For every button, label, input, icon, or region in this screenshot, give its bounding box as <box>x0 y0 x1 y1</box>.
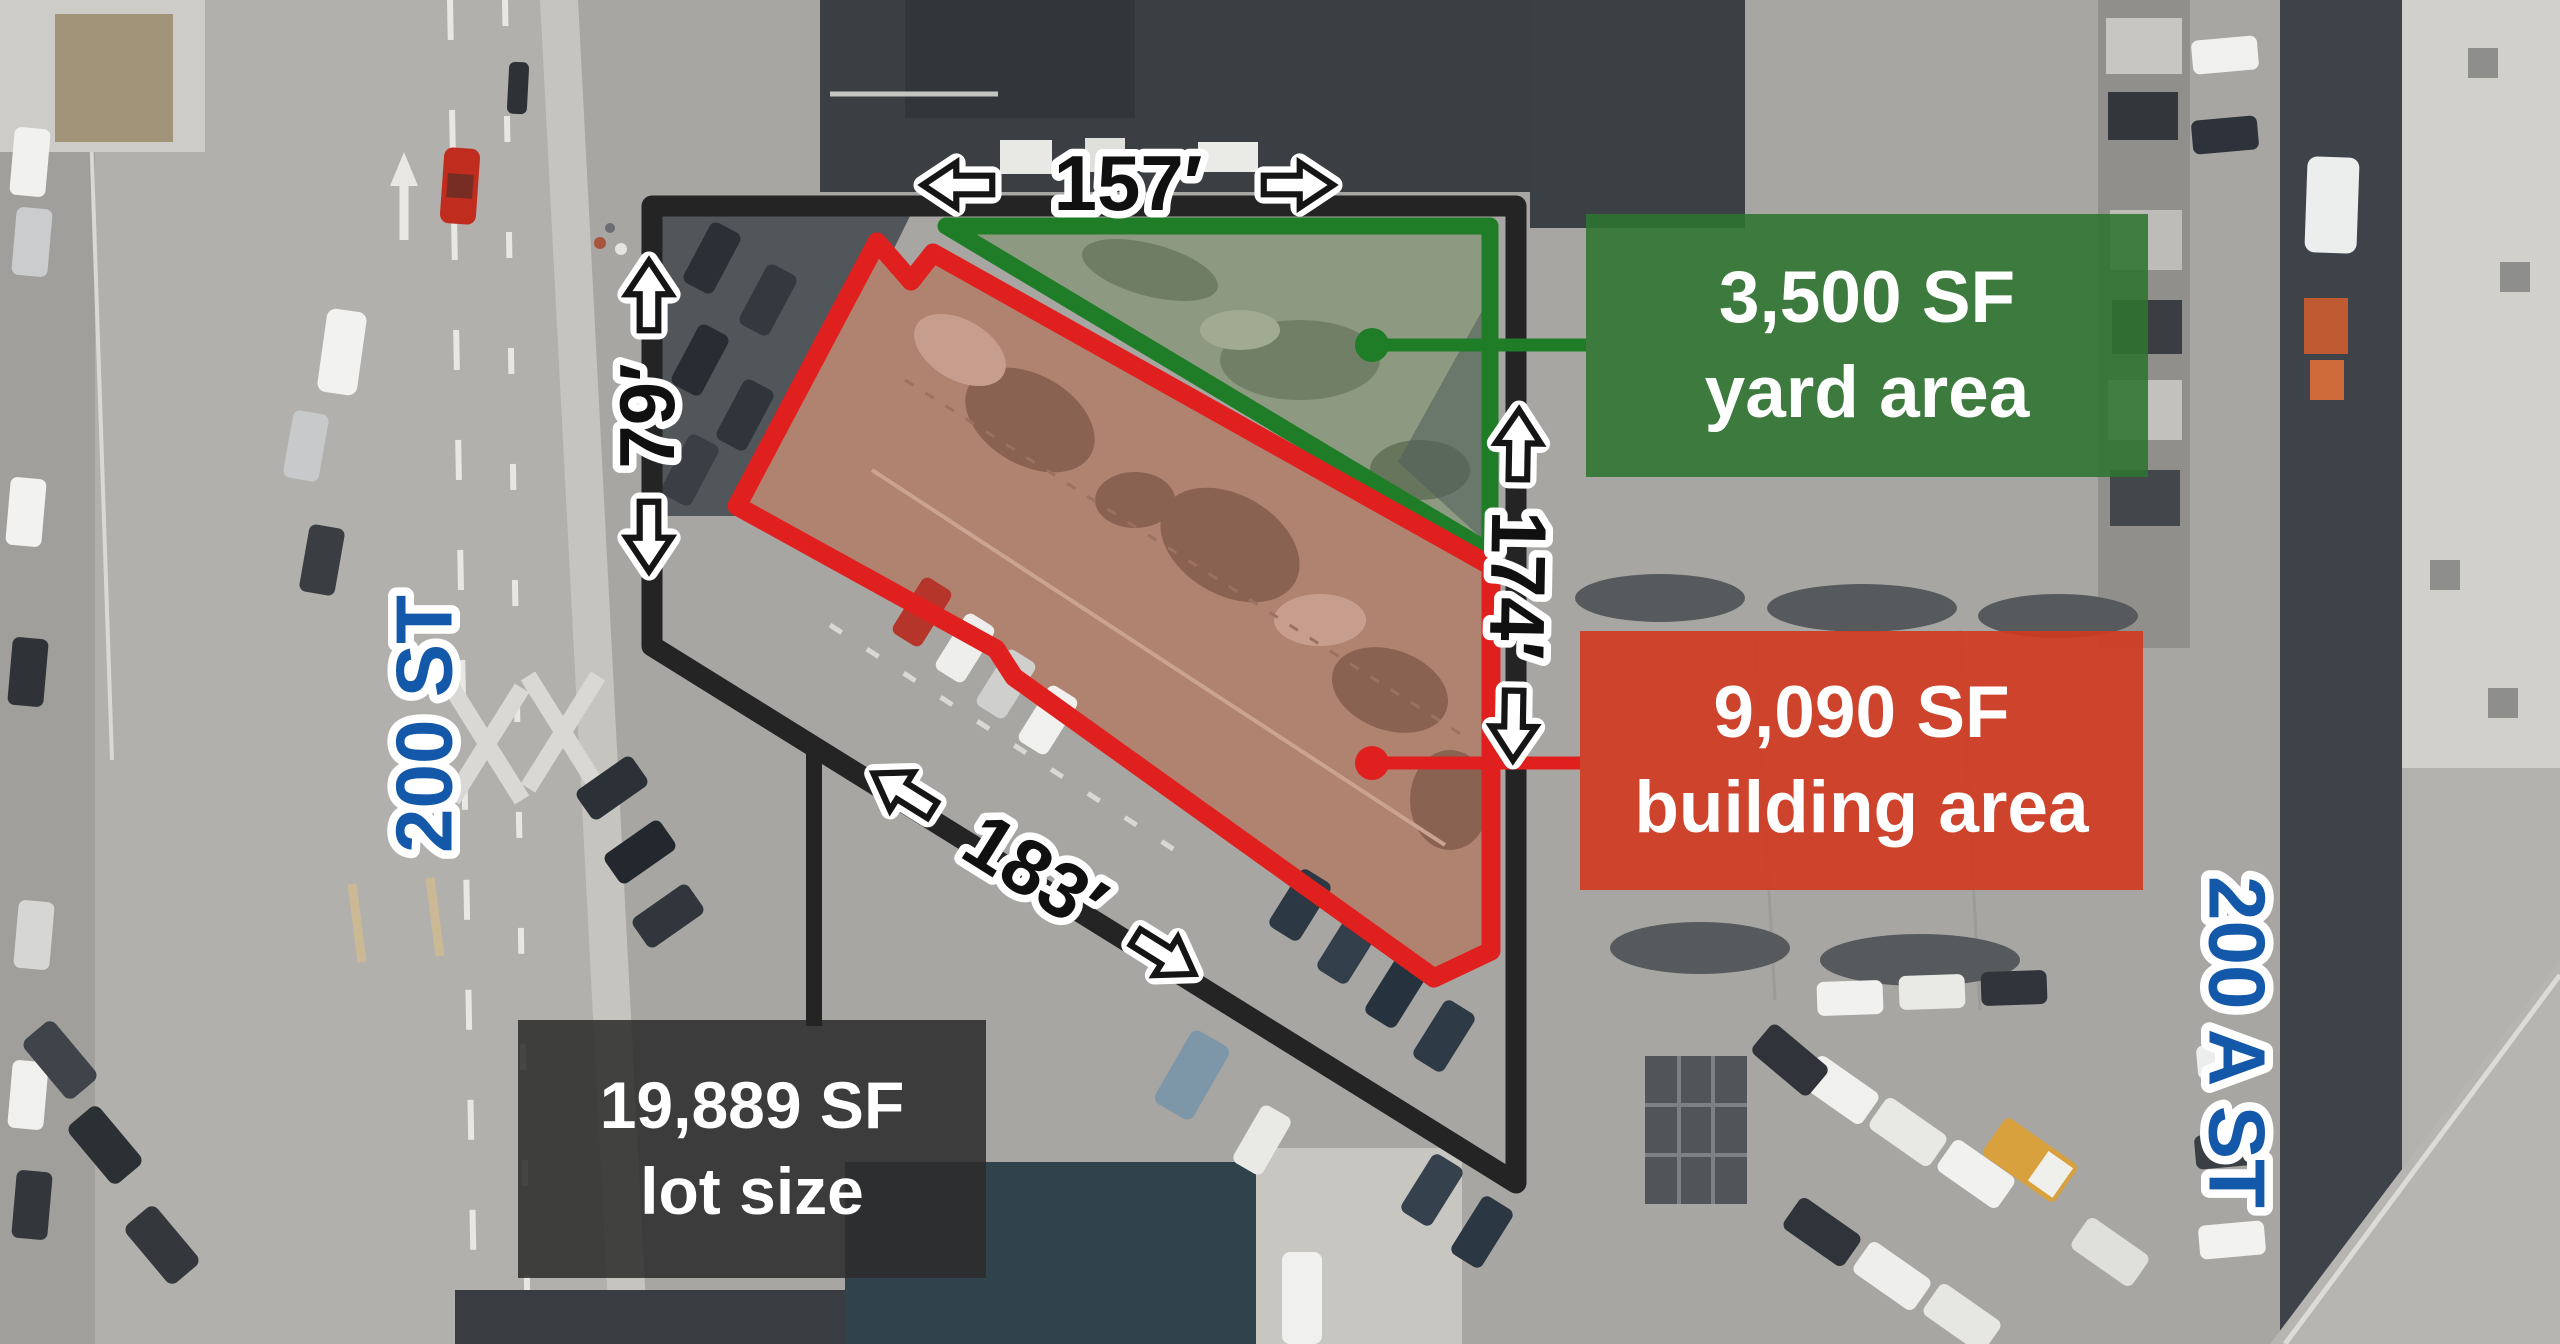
arrow-up-left-icon <box>862 755 945 830</box>
street-label-200-st: 200 ST <box>380 595 469 853</box>
dimension-label-left: 79′ <box>603 261 691 571</box>
annotation-overlay: 157′ 79′ 174′ <box>0 0 2560 1344</box>
arrow-right-icon <box>1264 163 1333 208</box>
street-label-200-a-st: 200 A ST <box>2193 876 2282 1208</box>
dimension-top-value: 157′ <box>1054 139 1203 227</box>
street-name-right: 200 A ST <box>2193 876 2282 1208</box>
yard-callout-dot <box>1355 328 1389 362</box>
arrow-down-icon <box>627 502 672 571</box>
yard-outline <box>946 226 1490 552</box>
arrow-left-icon <box>923 163 992 208</box>
aerial-property-map: 3,500 SF yard area 9,090 SF building are… <box>0 0 2560 1344</box>
arrow-down-right-icon <box>1124 918 1207 993</box>
building-callout-dot <box>1355 746 1389 780</box>
arrow-down-icon <box>1491 690 1537 760</box>
dimension-left-value: 79′ <box>603 363 691 468</box>
street-name-left: 200 ST <box>380 595 469 853</box>
arrow-up-icon <box>1496 409 1542 479</box>
arrow-up-icon <box>627 261 672 330</box>
dimension-right-value: 174′ <box>1473 510 1564 660</box>
